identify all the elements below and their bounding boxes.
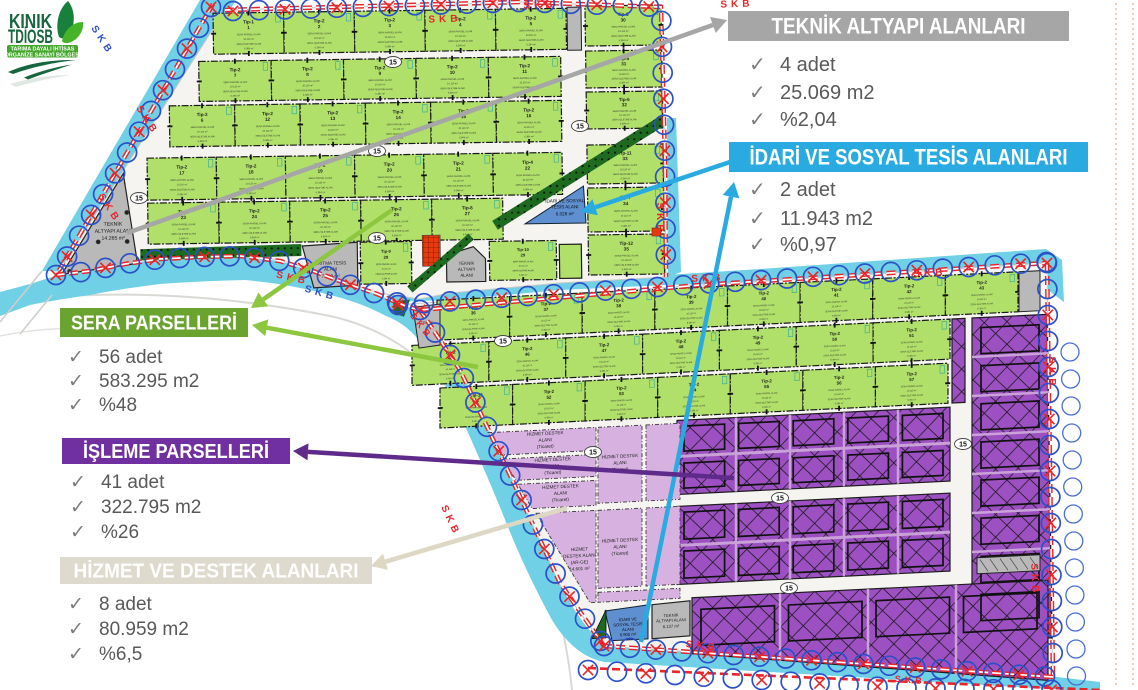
svg-text:SERA PARSEL ALANI: SERA PARSEL ALANI <box>386 123 410 126</box>
svg-text:10.110 m²: 10.110 m² <box>619 114 630 117</box>
svg-text:6.384 m²: 6.384 m² <box>835 402 844 405</box>
svg-text:Tip-2: Tip-2 <box>320 207 331 212</box>
svg-text:10.110 m²: 10.110 m² <box>621 214 632 217</box>
svg-text:6.384 m²: 6.384 m² <box>545 416 554 419</box>
svg-text:6.384 m²: 6.384 m² <box>617 413 626 416</box>
svg-text:10.110 m²: 10.110 m² <box>249 227 260 230</box>
svg-text:6.384 m²: 6.384 m² <box>454 189 464 192</box>
svg-text:Tip-2: Tip-2 <box>829 331 840 337</box>
svg-text:✓: ✓ <box>68 347 84 368</box>
svg-text:39: 39 <box>689 300 694 305</box>
svg-text:Tip-2: Tip-2 <box>314 18 325 23</box>
svg-text:50: 50 <box>832 337 837 342</box>
svg-text:SERA PARSEL ALANI: SERA PARSEL ALANI <box>256 125 280 128</box>
svg-text:SERA İŞLETME ALANI: SERA İŞLETME ALANI <box>612 118 637 121</box>
svg-text:6.384 m²: 6.384 m² <box>621 225 631 228</box>
svg-text:✓: ✓ <box>749 234 766 256</box>
svg-text:Tip-2: Tip-2 <box>176 165 187 170</box>
svg-text:TDİOSB: TDİOSB <box>8 27 53 48</box>
svg-text:10.110 m²: 10.110 m² <box>385 36 396 39</box>
svg-text:10.110 m²: 10.110 m² <box>302 84 313 87</box>
svg-text:SERA İŞLETME ALANI: SERA İŞLETME ALANI <box>170 188 195 191</box>
svg-text:%6,5: %6,5 <box>99 644 142 665</box>
svg-text:SERA İŞLETME ALANI: SERA İŞLETME ALANI <box>455 229 480 232</box>
svg-text:%48: %48 <box>99 395 137 416</box>
svg-text:10.110 m²: 10.110 m² <box>453 179 464 182</box>
svg-text:SERA PARSEL ALANI: SERA PARSEL ALANI <box>378 31 402 34</box>
svg-text:6.384 m²: 6.384 m² <box>526 43 536 46</box>
svg-text:(Ticaret): (Ticaret) <box>537 443 554 449</box>
svg-text:6.384 m²: 6.384 m² <box>316 191 326 194</box>
svg-text:10.110 m²: 10.110 m² <box>519 81 530 84</box>
svg-text:6.028 m²: 6.028 m² <box>556 211 575 216</box>
svg-text:10.110 m²: 10.110 m² <box>599 360 609 363</box>
svg-text:Tip-2: Tip-2 <box>384 17 395 22</box>
svg-text:Tip-2: Tip-2 <box>906 327 917 333</box>
svg-text:✓: ✓ <box>68 619 84 640</box>
svg-text:56 adet: 56 adet <box>99 347 163 368</box>
svg-text:SERA PARSEL ALANI: SERA PARSEL ALANI <box>513 260 534 263</box>
svg-text:TEKNİK ALTYAPI ALANLARI: TEKNİK ALTYAPI ALANLARI <box>772 14 1026 39</box>
svg-text:10.110 m²: 10.110 m² <box>614 315 624 318</box>
svg-text:20: 20 <box>387 168 393 173</box>
svg-text:SERA İŞLETME ALANI: SERA İŞLETME ALANI <box>255 134 280 137</box>
svg-text:Tip-4: Tip-4 <box>522 160 533 165</box>
svg-text:10.110 m²: 10.110 m² <box>468 323 478 326</box>
svg-text:15: 15 <box>373 149 381 156</box>
svg-text:SERA PARSEL ALANI: SERA PARSEL ALANI <box>170 179 194 182</box>
svg-text:43: 43 <box>979 285 984 290</box>
svg-text:5.905 m²: 5.905 m² <box>620 631 637 637</box>
svg-text:6.384 m²: 6.384 m² <box>469 332 478 335</box>
svg-text:(Ticaret): (Ticaret) <box>544 470 561 476</box>
svg-text:%26: %26 <box>101 522 139 543</box>
svg-text:Tip-2: Tip-2 <box>230 67 241 72</box>
svg-text:SERA İŞLETME ALANI: SERA İŞLETME ALANI <box>321 133 346 136</box>
svg-text:Tip-2: Tip-2 <box>599 342 610 348</box>
svg-text:10.110 m²: 10.110 m² <box>314 37 325 40</box>
svg-text:Tip-8: Tip-8 <box>462 205 473 210</box>
svg-text:SERA PARSEL ALANI: SERA PARSEL ALANI <box>243 222 267 225</box>
svg-text:10.110 m²: 10.110 m² <box>830 349 840 352</box>
svg-text:Tip-2: Tip-2 <box>447 64 458 69</box>
svg-text:10.110 m²: 10.110 m² <box>686 312 696 315</box>
svg-text:14.265 m²: 14.265 m² <box>101 235 125 241</box>
svg-text:6.384 m²: 6.384 m² <box>244 47 254 50</box>
svg-text:SERA İŞLETME ALANI: SERA İŞLETME ALANI <box>171 232 196 235</box>
svg-text:15: 15 <box>959 442 967 449</box>
svg-text:TEKNİK: TEKNİK <box>459 261 475 266</box>
svg-text:6.384 m²: 6.384 m² <box>519 274 528 277</box>
svg-text:10.110 m²: 10.110 m² <box>904 301 914 304</box>
svg-text:SERA PARSEL ALANI: SERA PARSEL ALANI <box>376 263 397 266</box>
svg-text:80.959 m2: 80.959 m2 <box>99 619 189 640</box>
svg-text:SERA PARSEL ALANI: SERA PARSEL ALANI <box>456 219 480 222</box>
svg-text:✓: ✓ <box>749 208 766 230</box>
svg-text:(AR-GE): (AR-GE) <box>571 559 589 565</box>
svg-text:Tip-2: Tip-2 <box>249 208 260 213</box>
svg-text:47: 47 <box>602 348 607 353</box>
svg-text:6.384 m²: 6.384 m² <box>524 135 534 138</box>
svg-text:%0,97: %0,97 <box>780 234 837 256</box>
svg-text:15: 15 <box>589 450 597 457</box>
svg-text:SERA PARSEL ALANI: SERA PARSEL ALANI <box>519 29 543 32</box>
svg-text:15: 15 <box>576 124 584 131</box>
svg-text:2 adet: 2 adet <box>780 179 836 201</box>
svg-text:6.384 m²: 6.384 m² <box>177 193 187 196</box>
svg-text:10.110 m²: 10.110 m² <box>391 225 402 228</box>
svg-text:56: 56 <box>837 380 842 385</box>
svg-text:SERA PARSEL ALANI: SERA PARSEL ALANI <box>613 110 637 113</box>
svg-text:21: 21 <box>456 167 462 172</box>
svg-text:32: 32 <box>622 102 628 107</box>
svg-text:6.384 m²: 6.384 m² <box>448 91 458 94</box>
svg-text:15: 15 <box>135 196 143 203</box>
svg-text:6.384 m²: 6.384 m² <box>762 405 771 408</box>
svg-text:ALANI: ALANI <box>460 273 473 278</box>
svg-text:10.110 m²: 10.110 m² <box>447 82 458 85</box>
svg-text:31: 31 <box>621 61 627 66</box>
svg-text:51: 51 <box>909 333 914 338</box>
svg-text:SERA İŞLETME ALANI: SERA İŞLETME ALANI <box>190 135 215 138</box>
svg-text:4 adet: 4 adet <box>780 54 836 76</box>
svg-text:10.110 m²: 10.110 m² <box>834 393 844 396</box>
svg-text:11: 11 <box>522 69 527 74</box>
svg-text:6.384 m²: 6.384 m² <box>321 235 331 238</box>
svg-text:✓: ✓ <box>68 371 84 392</box>
svg-text:14: 14 <box>396 115 402 120</box>
svg-text:10.110 m²: 10.110 m² <box>381 267 391 270</box>
svg-text:10.110 m²: 10.110 m² <box>320 226 331 229</box>
svg-text:SERA İŞLETME ALANI: SERA İŞLETME ALANI <box>614 264 639 267</box>
svg-text:Tip-2: Tip-2 <box>676 338 687 344</box>
svg-text:10.110 m²: 10.110 m² <box>832 305 842 308</box>
svg-text:6.384 m²: 6.384 m² <box>677 366 686 369</box>
svg-text:SERA İŞLETME ALANI: SERA İŞLETME ALANI <box>517 131 542 134</box>
svg-text:SERA PARSEL ALANI: SERA PARSEL ALANI <box>615 254 639 257</box>
svg-text:15: 15 <box>373 236 381 243</box>
svg-text:6.384 m²: 6.384 m² <box>621 177 631 180</box>
svg-text:38: 38 <box>616 303 621 308</box>
svg-text:SERA İŞLETME ALANI: SERA İŞLETME ALANI <box>368 88 393 91</box>
svg-text:10.110 m²: 10.110 m² <box>375 83 386 86</box>
svg-text:37: 37 <box>543 307 548 312</box>
svg-text:İDARİ VE SOSYAL: İDARİ VE SOSYAL <box>545 197 584 204</box>
svg-text:6.384 m²: 6.384 m² <box>456 44 466 47</box>
svg-text:✓: ✓ <box>70 522 86 543</box>
svg-text:Tip-2: Tip-2 <box>519 63 530 68</box>
svg-text:SERA İŞLETME ALANI: SERA İŞLETME ALANI <box>377 185 402 188</box>
svg-text:29: 29 <box>521 252 526 257</box>
svg-text:10.110 m²: 10.110 m² <box>522 178 533 181</box>
svg-text:SKB: SKB <box>428 13 461 25</box>
svg-text:SERA PARSEL ALANI: SERA PARSEL ALANI <box>296 80 320 83</box>
svg-text:TESİS ALANI: TESİS ALANI <box>551 203 579 209</box>
svg-text:6.384 m²: 6.384 m² <box>690 409 699 412</box>
svg-text:10.110 m²: 10.110 m² <box>544 407 554 410</box>
svg-text:Tip-2: Tip-2 <box>616 385 627 391</box>
svg-text:ALTYAPI ALANI: ALTYAPI ALANI <box>95 228 132 235</box>
svg-text:26: 26 <box>394 212 400 217</box>
svg-text:6.384 m²: 6.384 m² <box>459 136 469 139</box>
svg-text:✓: ✓ <box>749 54 766 76</box>
svg-text:10.110 m²: 10.110 m² <box>522 364 532 367</box>
svg-text:✓: ✓ <box>68 395 84 416</box>
svg-text:Tip-2: Tip-2 <box>374 65 385 70</box>
svg-text:57: 57 <box>909 377 914 382</box>
svg-text:6.384 m²: 6.384 m² <box>907 354 916 357</box>
svg-text:10.110 m²: 10.110 m² <box>315 181 326 184</box>
svg-text:SERA İŞLETME ALANI: SERA İŞLETME ALANI <box>448 40 473 43</box>
svg-text:Tip-2: Tip-2 <box>759 290 770 296</box>
svg-text:6.384 m²: 6.384 m² <box>315 46 325 49</box>
svg-text:6.384 m²: 6.384 m² <box>977 307 986 310</box>
svg-text:6.384 m²: 6.384 m² <box>303 93 313 96</box>
svg-text:SERA İŞLETME ALANI: SERA İŞLETME ALANI <box>242 232 267 235</box>
svg-text:Tip-2: Tip-2 <box>834 375 845 381</box>
svg-text:İŞLEME PARSELLERİ: İŞLEME PARSELLERİ <box>83 440 269 463</box>
svg-text:6.384 m²: 6.384 m² <box>600 369 609 372</box>
svg-text:6.384 m²: 6.384 m² <box>392 234 402 237</box>
svg-text:SERA PARSEL ALANI: SERA PARSEL ALANI <box>517 121 541 124</box>
svg-text:ALANI: ALANI <box>554 490 567 496</box>
svg-text:13: 13 <box>330 116 336 121</box>
svg-text:10.110 m²: 10.110 m² <box>526 34 537 37</box>
svg-text:10.110 m²: 10.110 m² <box>753 353 763 356</box>
svg-text:6.384 m²: 6.384 m² <box>247 192 257 195</box>
svg-text:HİZMET: HİZMET <box>571 545 588 552</box>
svg-text:SERA PARSEL ALANI: SERA PARSEL ALANI <box>237 33 261 36</box>
svg-text:SERA PARSEL ALANI: SERA PARSEL ALANI <box>378 176 402 179</box>
svg-text:Tip-2: Tip-2 <box>753 335 764 341</box>
svg-text:10.110 m²: 10.110 m² <box>230 85 241 88</box>
svg-text:SERA İŞLETME ALANI: SERA İŞLETME ALANI <box>308 186 333 189</box>
svg-text:ALTYAPI: ALTYAPI <box>458 267 475 272</box>
svg-text:Tip-2: Tip-2 <box>525 15 536 20</box>
svg-text:14.601 m²: 14.601 m² <box>569 566 590 572</box>
svg-text:10.110 m²: 10.110 m² <box>458 127 469 130</box>
svg-text:6.384 m²: 6.384 m² <box>619 39 629 42</box>
svg-text:Tip-2: Tip-2 <box>523 107 534 112</box>
svg-text:6.384 m²: 6.384 m² <box>523 188 533 191</box>
svg-text:17: 17 <box>179 170 185 175</box>
svg-text:SERA İŞLETME ALANI: SERA İŞLETME ALANI <box>375 272 397 275</box>
svg-text:SERA PARSEL ALANI: SERA PARSEL ALANI <box>190 126 214 129</box>
svg-text:SERA İŞLETME ALANI: SERA İŞLETME ALANI <box>611 35 636 38</box>
svg-text:SERA PARSEL ALANI: SERA PARSEL ALANI <box>172 223 196 226</box>
svg-text:10.110 m²: 10.110 m² <box>178 228 189 231</box>
svg-text:SERA İŞLETME ALANI: SERA İŞLETME ALANI <box>313 231 338 234</box>
svg-text:SERA PARSEL ALANI: SERA PARSEL ALANI <box>441 78 465 81</box>
svg-text:Tip-2: Tip-2 <box>393 109 404 114</box>
svg-text:6.384 m²: 6.384 m² <box>614 325 623 328</box>
svg-text:30: 30 <box>621 17 627 22</box>
svg-text:6.384 m²: 6.384 m² <box>619 81 629 84</box>
svg-text:10.110 m²: 10.110 m² <box>262 130 273 133</box>
svg-text:SERA PARSEL ALANI: SERA PARSEL ALANI <box>307 32 331 35</box>
svg-text:10.110 m²: 10.110 m² <box>676 356 686 359</box>
svg-text:✓: ✓ <box>70 497 86 518</box>
svg-text:10.110 m²: 10.110 m² <box>455 35 466 38</box>
svg-text:Tip-12: Tip-12 <box>620 241 634 246</box>
svg-text:33: 33 <box>622 156 628 161</box>
svg-text:Tip-2: Tip-2 <box>544 389 555 395</box>
svg-text:ALANI: ALANI <box>613 460 626 466</box>
svg-text:SERA PARSEL ALANI: SERA PARSEL ALANI <box>611 25 635 28</box>
svg-text:(Ticaret): (Ticaret) <box>552 497 569 503</box>
svg-text:10.110 m²: 10.110 m² <box>246 182 257 185</box>
svg-text:6.384 m²: 6.384 m² <box>523 373 532 376</box>
svg-text:10.110 m²: 10.110 m² <box>541 319 551 322</box>
svg-text:SKB: SKB <box>1028 563 1041 597</box>
svg-text:SERA PARSEL ALANI: SERA PARSEL ALANI <box>449 30 473 33</box>
svg-text:SERA PARSEL ALANI: SERA PARSEL ALANI <box>368 79 392 82</box>
svg-text:SERA İŞLETME ALANI: SERA İŞLETME ALANI <box>519 39 544 42</box>
svg-text:Tip-1: Tip-1 <box>243 19 254 24</box>
svg-text:6.384 m²: 6.384 m² <box>905 310 914 313</box>
svg-text:6.137 m²: 6.137 m² <box>663 623 680 629</box>
svg-text:583.295 m2: 583.295 m2 <box>99 371 199 392</box>
svg-text:6.384 m²: 6.384 m² <box>622 268 632 271</box>
svg-text:SERA PARSEL ALANI: SERA PARSEL ALANI <box>613 164 637 167</box>
svg-text:24: 24 <box>252 214 258 219</box>
svg-text:SERA PARSEL ALANI: SERA PARSEL ALANI <box>612 69 636 72</box>
svg-text:SKB: SKB <box>523 0 556 12</box>
svg-text:SERA İŞLETME ALANI: SERA İŞLETME ALANI <box>223 90 248 93</box>
svg-text:48: 48 <box>679 344 684 349</box>
svg-text:SERA PARSEL ALANI: SERA PARSEL ALANI <box>516 174 540 177</box>
svg-text:6.384 m²: 6.384 m² <box>830 358 839 361</box>
svg-text:6.384 m²: 6.384 m² <box>263 139 273 142</box>
svg-text:SERA PARSEL ALANI: SERA PARSEL ALANI <box>223 81 247 84</box>
svg-text:6.384 m²: 6.384 m² <box>375 92 385 95</box>
svg-text:SERA İŞLETME ALANI: SERA İŞLETME ALANI <box>451 132 476 135</box>
svg-text:ORGANİZE SANAYİ BÖLGESİ: ORGANİZE SANAYİ BÖLGESİ <box>5 51 81 58</box>
svg-text:10.110 m²: 10.110 m² <box>328 129 339 132</box>
svg-text:✓: ✓ <box>749 109 766 131</box>
svg-text:15: 15 <box>776 496 784 503</box>
svg-text:6.384 m²: 6.384 m² <box>687 321 696 324</box>
svg-text:SKB: SKB <box>913 267 947 280</box>
svg-text:25.069 m2: 25.069 m2 <box>780 82 875 104</box>
svg-text:10.110 m²: 10.110 m² <box>518 265 528 268</box>
svg-text:52: 52 <box>546 395 551 400</box>
svg-text:55: 55 <box>764 384 769 389</box>
svg-text:Tip-2: Tip-2 <box>761 378 772 384</box>
svg-text:10.110 m²: 10.110 m² <box>177 183 188 186</box>
svg-text:ALANI: ALANI <box>613 544 626 550</box>
svg-text:15: 15 <box>389 60 397 67</box>
svg-text:10.110 m²: 10.110 m² <box>621 259 632 262</box>
svg-text:✓: ✓ <box>749 82 766 104</box>
svg-text:SERA İŞLETME ALANI: SERA İŞLETME ALANI <box>378 41 403 44</box>
svg-text:SKB: SKB <box>720 0 753 11</box>
svg-text:10.110 m²: 10.110 m² <box>446 368 456 371</box>
svg-text:6.384 m²: 6.384 m² <box>832 314 841 317</box>
svg-text:10.110 m²: 10.110 m² <box>243 38 254 41</box>
svg-text:SERA PARSEL ALANI: SERA PARSEL ALANI <box>513 77 537 80</box>
svg-text:10.110 m²: 10.110 m² <box>618 30 629 33</box>
svg-text:10.110 m²: 10.110 m² <box>524 126 535 129</box>
svg-text:15: 15 <box>785 586 793 593</box>
svg-text:6.384 m²: 6.384 m² <box>620 122 630 125</box>
svg-text:42: 42 <box>907 289 912 294</box>
svg-text:SKB: SKB <box>691 272 725 285</box>
svg-text:ALANI: ALANI <box>539 437 552 443</box>
svg-text:6.384 m²: 6.384 m² <box>385 45 395 48</box>
svg-text:35: 35 <box>624 246 630 251</box>
svg-text:12: 12 <box>265 117 271 122</box>
svg-text:SERA İŞLETME ALANI: SERA İŞLETME ALANI <box>440 87 465 90</box>
svg-text:Tip-2: Tip-2 <box>831 287 842 293</box>
svg-text:6.384 m²: 6.384 m² <box>907 398 916 401</box>
svg-text:46: 46 <box>525 352 530 357</box>
svg-text:322.795 m2: 322.795 m2 <box>101 497 201 518</box>
svg-text:53: 53 <box>619 391 624 396</box>
svg-text:SKB: SKB <box>1046 356 1057 389</box>
svg-text:İDARİ VE SOSYAL TESİS ALANLARI: İDARİ VE SOSYAL TESİS ALANLARI <box>750 145 1068 170</box>
svg-text:Tip-2: Tip-2 <box>904 283 915 289</box>
svg-text:Tip-9: Tip-9 <box>381 249 391 254</box>
svg-text:10.110 m²: 10.110 m² <box>393 128 404 131</box>
svg-text:HİZMET VE DESTEK ALANLARI: HİZMET VE DESTEK ALANLARI <box>74 560 359 583</box>
svg-text:28: 28 <box>384 255 389 260</box>
svg-text:27: 27 <box>465 211 471 216</box>
svg-text:10.110 m²: 10.110 m² <box>617 403 627 406</box>
svg-text:SERA İŞLETME ALANI: SERA İŞLETME ALANI <box>446 184 471 187</box>
svg-text:Tip-2: Tip-2 <box>613 297 624 303</box>
svg-text:6.384 m²: 6.384 m² <box>542 328 551 331</box>
svg-text:SERA PARSEL ALANI: SERA PARSEL ALANI <box>321 124 345 127</box>
svg-text:SERA İŞLETME ALANI: SERA İŞLETME ALANI <box>295 89 320 92</box>
svg-text:Tip-2: Tip-2 <box>453 161 464 166</box>
svg-text:6.384 m²: 6.384 m² <box>198 140 208 143</box>
svg-text:10.110 m²: 10.110 m² <box>762 396 772 399</box>
svg-text:Tip-3: Tip-3 <box>197 112 208 117</box>
svg-text:SERA PARSEL ALANI: SERA PARSEL ALANI <box>614 210 638 213</box>
svg-text:Tip-2: Tip-2 <box>327 110 338 115</box>
svg-text:SERA İŞLETME ALANI: SERA İŞLETME ALANI <box>515 183 540 186</box>
svg-text:40: 40 <box>761 296 766 301</box>
svg-text:10.110 m²: 10.110 m² <box>619 73 630 76</box>
svg-text:(Ticaret): (Ticaret) <box>612 550 629 556</box>
svg-text:6.384 m²: 6.384 m² <box>754 362 763 365</box>
svg-text:Tip-2: Tip-2 <box>906 371 917 377</box>
svg-text:8 adet: 8 adet <box>99 594 153 615</box>
svg-text:10: 10 <box>450 70 456 75</box>
svg-text:6.384 m²: 6.384 m² <box>328 138 338 141</box>
svg-text:22: 22 <box>525 166 531 171</box>
svg-text:✓: ✓ <box>68 594 84 615</box>
svg-text:SERA PARSEL ALANI: SERA PARSEL ALANI <box>452 122 476 125</box>
svg-text:10.110 m²: 10.110 m² <box>462 224 473 227</box>
svg-text:✓: ✓ <box>68 644 84 665</box>
svg-text:✓: ✓ <box>749 179 766 201</box>
svg-text:SERA PARSEL ALANI: SERA PARSEL ALANI <box>314 221 338 224</box>
svg-text:SERA İŞLETME ALANI: SERA İŞLETME ALANI <box>614 220 639 223</box>
svg-text:6.384 m²: 6.384 m² <box>759 318 768 321</box>
svg-text:%2,04: %2,04 <box>780 109 837 131</box>
svg-text:34: 34 <box>623 201 629 206</box>
svg-text:15: 15 <box>499 339 507 346</box>
svg-text:25: 25 <box>323 213 329 218</box>
svg-text:6.384 m²: 6.384 m² <box>231 94 241 97</box>
svg-text:36: 36 <box>471 310 476 315</box>
svg-text:Tip-2: Tip-2 <box>262 111 273 116</box>
svg-text:Tip-2: Tip-2 <box>391 206 402 211</box>
svg-text:SERA PARSEL ALANI: SERA PARSEL ALANI <box>385 220 409 223</box>
svg-text:Tip-2: Tip-2 <box>245 164 256 169</box>
